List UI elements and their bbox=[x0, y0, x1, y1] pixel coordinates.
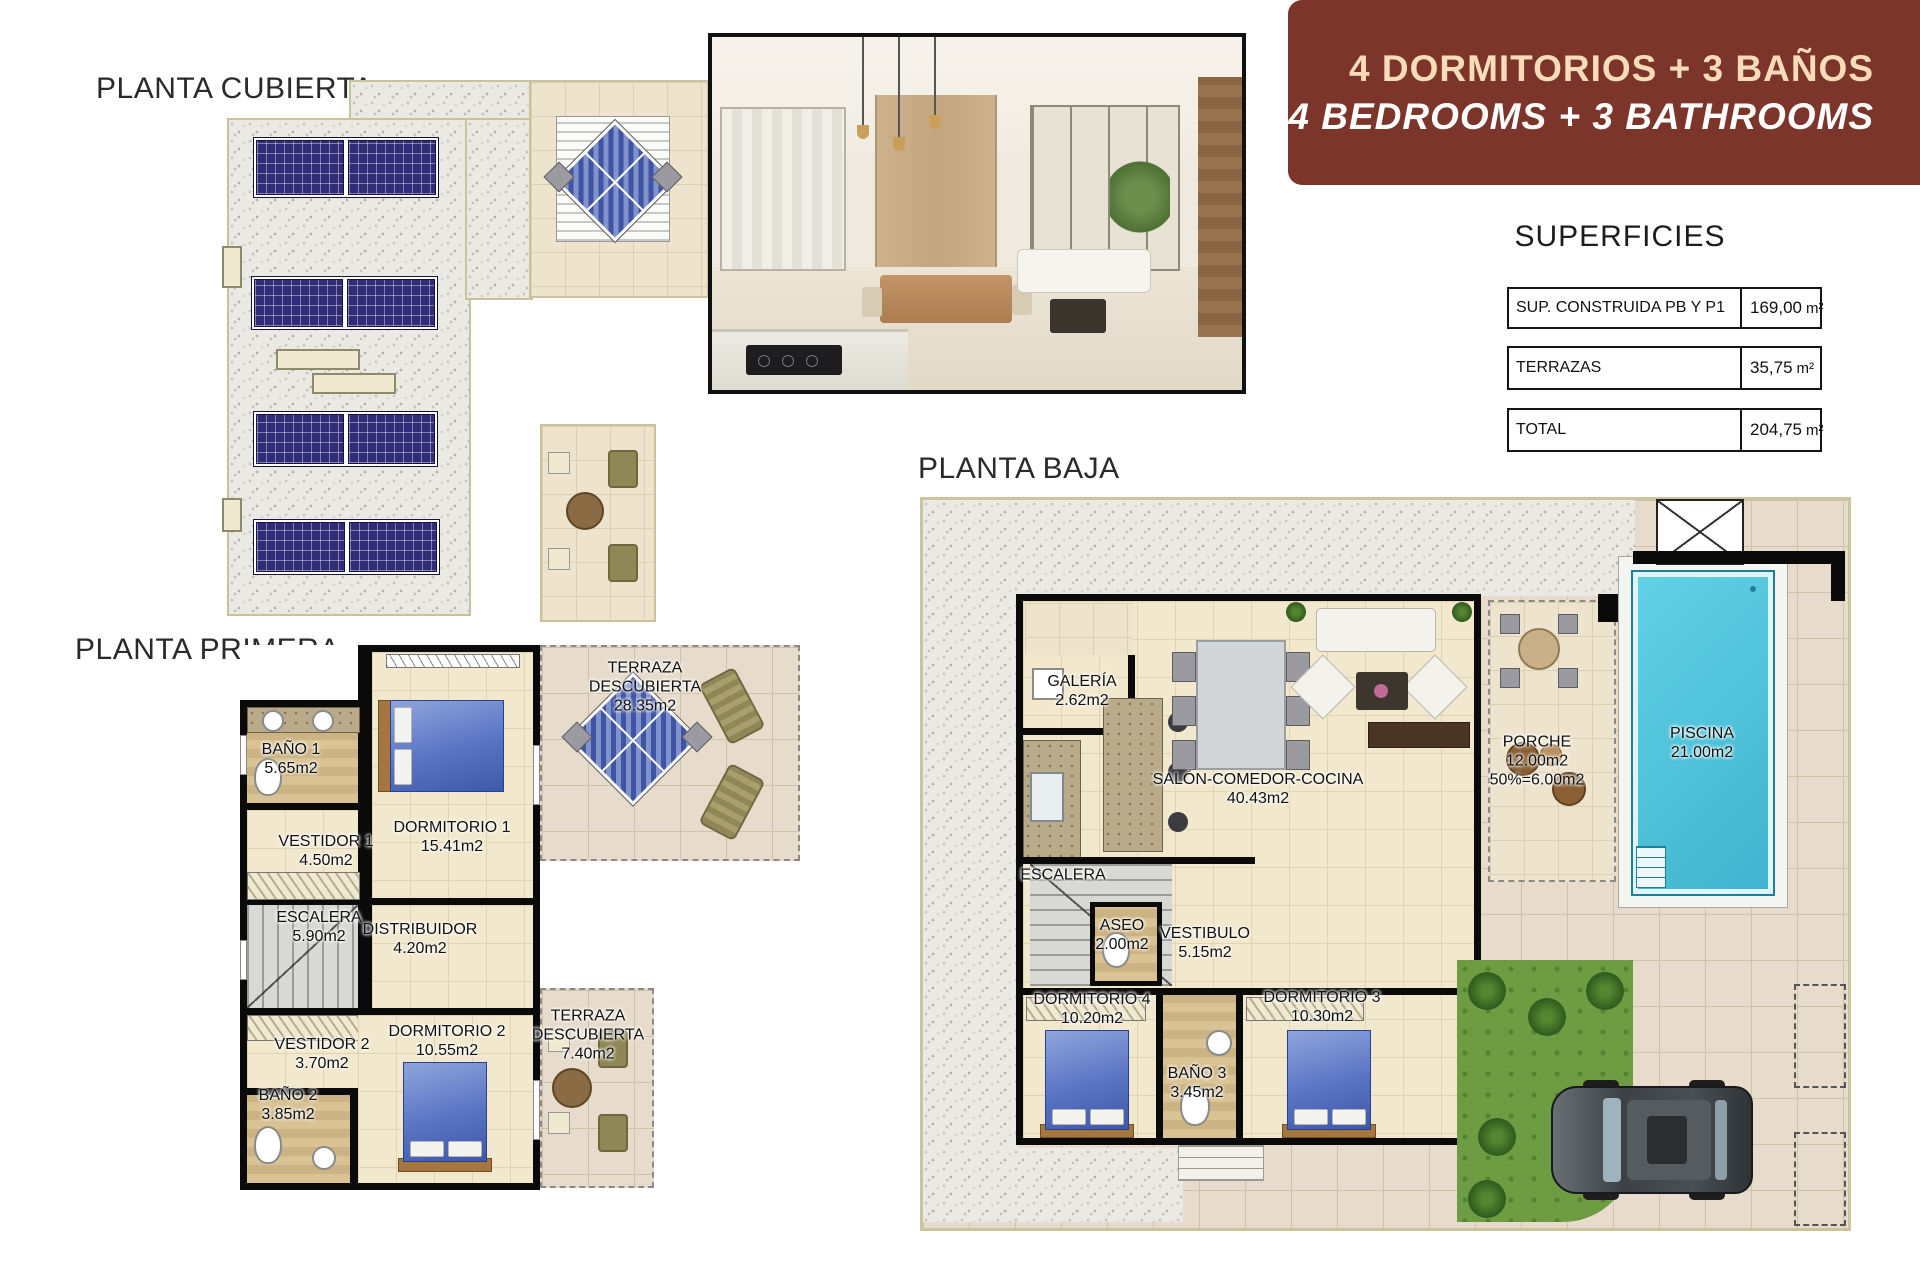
round-table-icon bbox=[1518, 628, 1560, 670]
bush-icon bbox=[1468, 1180, 1506, 1218]
superficies-row-unit: m² bbox=[1806, 422, 1824, 439]
plant-icon bbox=[1286, 602, 1306, 622]
room-label: VESTIBULO5.15m2 bbox=[1160, 925, 1250, 963]
chair-icon bbox=[1172, 696, 1196, 726]
gravel-area bbox=[923, 500, 1018, 1222]
chair-icon bbox=[1558, 614, 1578, 634]
photo-burner bbox=[758, 355, 770, 367]
room-label: BAÑO 23.85m2 bbox=[259, 1087, 318, 1125]
sink-icon bbox=[262, 710, 284, 732]
pendant-light-icon bbox=[893, 137, 905, 151]
gate-icon bbox=[1794, 984, 1846, 1088]
pillow-icon bbox=[410, 1141, 444, 1157]
pergola-beam bbox=[1633, 551, 1845, 564]
room-label: DORMITORIO 310.30m2 bbox=[1263, 989, 1380, 1027]
gate-icon bbox=[1794, 1132, 1846, 1226]
bush-icon bbox=[1586, 972, 1624, 1010]
wardrobe-icon bbox=[247, 872, 360, 900]
solar-panel-icon bbox=[253, 137, 439, 198]
roof-gravel-right bbox=[465, 118, 533, 300]
banner-line-en: 4 BEDROOMS + 3 BATHROOMS bbox=[1288, 96, 1874, 138]
pillow-icon bbox=[394, 749, 412, 785]
window-icon bbox=[533, 745, 540, 805]
superficies-row-value: 204,75 bbox=[1750, 420, 1802, 440]
chair-icon bbox=[608, 544, 638, 582]
window-icon bbox=[240, 940, 247, 980]
partition-wall bbox=[1156, 995, 1163, 1138]
room-label: BAÑO 33.45m2 bbox=[1168, 1065, 1227, 1103]
pendant-light-icon bbox=[934, 37, 936, 115]
room-label: PISCINA21.00m2 bbox=[1670, 725, 1734, 763]
pergola-post bbox=[1831, 551, 1845, 601]
room-label: PORCHE12.00m250%=6.00m2 bbox=[1490, 734, 1585, 791]
utility-patio bbox=[1025, 603, 1133, 655]
window-icon bbox=[533, 1080, 540, 1140]
pool-ladder-icon bbox=[1750, 586, 1756, 592]
pillow-icon bbox=[1294, 1109, 1328, 1125]
pillow-icon bbox=[1090, 1109, 1124, 1125]
pendant-light-icon bbox=[929, 115, 941, 129]
car-icon bbox=[1551, 1086, 1753, 1194]
flowers-icon bbox=[1374, 684, 1388, 698]
plant-icon bbox=[1452, 602, 1472, 622]
partition-wall bbox=[1236, 995, 1243, 1138]
bed-icon bbox=[1287, 1030, 1371, 1130]
pillow-icon bbox=[448, 1141, 482, 1157]
chair-icon bbox=[1500, 668, 1520, 688]
bush-icon bbox=[1468, 972, 1506, 1010]
sink-icon bbox=[312, 710, 334, 732]
photo-chair bbox=[862, 287, 882, 317]
chair-icon bbox=[1172, 740, 1196, 770]
side-table-icon bbox=[548, 1112, 570, 1134]
bush-icon bbox=[1478, 1118, 1516, 1156]
window-icon bbox=[240, 735, 247, 775]
superficies-row: TERRAZAS 35,75m² bbox=[1507, 346, 1822, 390]
room-label: VESTIDOR 14.50m2 bbox=[278, 833, 373, 871]
toilet-icon bbox=[254, 1126, 282, 1164]
room-label: VESTIDOR 23.70m2 bbox=[274, 1036, 369, 1074]
chair-icon bbox=[1172, 652, 1196, 682]
superficies-row-label: TERRAZAS bbox=[1509, 348, 1742, 388]
roof-vent-icon bbox=[276, 349, 360, 370]
photo-wood-wall bbox=[1198, 77, 1242, 337]
superficies-row-label: TOTAL bbox=[1509, 410, 1742, 450]
photo-burner bbox=[806, 355, 818, 367]
round-table-icon bbox=[566, 492, 604, 530]
chair-icon bbox=[1558, 668, 1578, 688]
car-rear-window bbox=[1715, 1100, 1727, 1180]
room-label: ESCALERA bbox=[1020, 867, 1105, 886]
room-label: BAÑO 15.65m2 bbox=[262, 741, 321, 779]
pillow-icon bbox=[394, 707, 412, 743]
superficies-row-unit: m² bbox=[1806, 300, 1824, 317]
ground-floor-title: PLANTA BAJA bbox=[918, 452, 1120, 486]
gravel-area bbox=[923, 500, 1635, 596]
entry-steps bbox=[1178, 1145, 1264, 1181]
car-windshield bbox=[1603, 1098, 1621, 1182]
chair-icon bbox=[1286, 740, 1310, 770]
solar-panel-icon bbox=[253, 519, 440, 575]
photo-plant bbox=[1110, 157, 1170, 237]
roof-vent-icon bbox=[222, 246, 242, 288]
photo-dining-table bbox=[880, 275, 1012, 323]
superficies-row-label: SUP. CONSTRUIDA PB Y P1 bbox=[1509, 289, 1742, 327]
solar-panel-icon bbox=[253, 411, 438, 467]
dining-table-icon bbox=[1196, 640, 1286, 770]
chair-icon bbox=[608, 450, 638, 488]
pendant-light-icon bbox=[898, 37, 900, 137]
pool-steps-icon bbox=[1636, 846, 1666, 888]
superficies-row: TOTAL 204,75m² bbox=[1507, 408, 1822, 452]
bush-icon bbox=[1528, 998, 1566, 1036]
window-icon bbox=[386, 654, 520, 668]
room-label: ESCALERA5.90m2 bbox=[276, 909, 361, 947]
interior-photo bbox=[708, 33, 1246, 394]
room-label: TERRAZA DESCUBIERTA7.40m2 bbox=[527, 1008, 649, 1065]
banner-line-es: 4 DORMITORIOS + 3 BAÑOS bbox=[1349, 48, 1874, 90]
photo-sofa bbox=[1017, 249, 1151, 293]
kitchen-sink-icon bbox=[1030, 772, 1064, 822]
partition-wall bbox=[1023, 857, 1255, 864]
roof-vent-icon bbox=[312, 373, 396, 394]
superficies-row-value: 169,00 bbox=[1750, 298, 1802, 318]
bed-icon bbox=[1045, 1030, 1129, 1130]
building-notch bbox=[240, 645, 358, 700]
solar-panel-icon bbox=[251, 276, 438, 330]
room-label: DISTRIBUIDOR4.20m2 bbox=[363, 921, 478, 959]
tv-bench-icon bbox=[1368, 722, 1470, 748]
bedrooms-banner: 4 DORMITORIOS + 3 BAÑOS 4 BEDROOMS + 3 B… bbox=[1288, 0, 1920, 185]
superficies-heading: SUPERFICIES bbox=[1500, 220, 1740, 254]
side-table-icon bbox=[548, 452, 570, 474]
bed-icon bbox=[390, 700, 504, 792]
pendant-light-icon bbox=[857, 125, 869, 139]
side-table-icon bbox=[548, 548, 570, 570]
room-label: DORMITORIO 410.20m2 bbox=[1033, 991, 1150, 1029]
stool-icon bbox=[1168, 812, 1188, 832]
room-label: TERRAZA DESCUBIERTA28.35m2 bbox=[584, 660, 706, 717]
gravel-area bbox=[923, 1148, 1183, 1222]
photo-window-curtains bbox=[720, 107, 846, 271]
bed-icon bbox=[403, 1062, 487, 1162]
floorplan-sheet: PLANTA CUBIERTA PLANTA PRIMERA PLANTA BA… bbox=[0, 0, 1920, 1280]
room-label: DORMITORIO 115.41m2 bbox=[393, 819, 510, 857]
room-label: GALERÍA2.62m2 bbox=[1047, 673, 1116, 711]
round-table-icon bbox=[552, 1068, 592, 1108]
photo-burner bbox=[782, 355, 794, 367]
roof-plan-title: PLANTA CUBIERTA bbox=[96, 72, 374, 106]
superficies-row: SUP. CONSTRUIDA PB Y P1 169,00m² bbox=[1507, 287, 1822, 329]
chair-icon bbox=[1500, 614, 1520, 634]
room-label: DORMITORIO 210.55m2 bbox=[388, 1023, 505, 1061]
pendant-light-icon bbox=[862, 37, 864, 125]
roof-vent-icon bbox=[222, 498, 242, 532]
sink-icon bbox=[312, 1146, 336, 1170]
sofa-icon bbox=[1316, 608, 1436, 652]
pillow-icon bbox=[1052, 1109, 1086, 1125]
superficies-row-unit: m² bbox=[1797, 360, 1815, 377]
pillow-icon bbox=[1332, 1109, 1366, 1125]
room-label: SALÓN-COMEDOR-COCINA40.43m2 bbox=[1153, 771, 1364, 809]
photo-coffee-table bbox=[1050, 299, 1106, 333]
superficies-row-value: 35,75 bbox=[1750, 358, 1793, 378]
car-sunroof bbox=[1647, 1116, 1687, 1164]
room-label: ASEO2.00m2 bbox=[1095, 917, 1148, 955]
chair-icon bbox=[598, 1114, 628, 1152]
sink-icon bbox=[1206, 1030, 1232, 1056]
